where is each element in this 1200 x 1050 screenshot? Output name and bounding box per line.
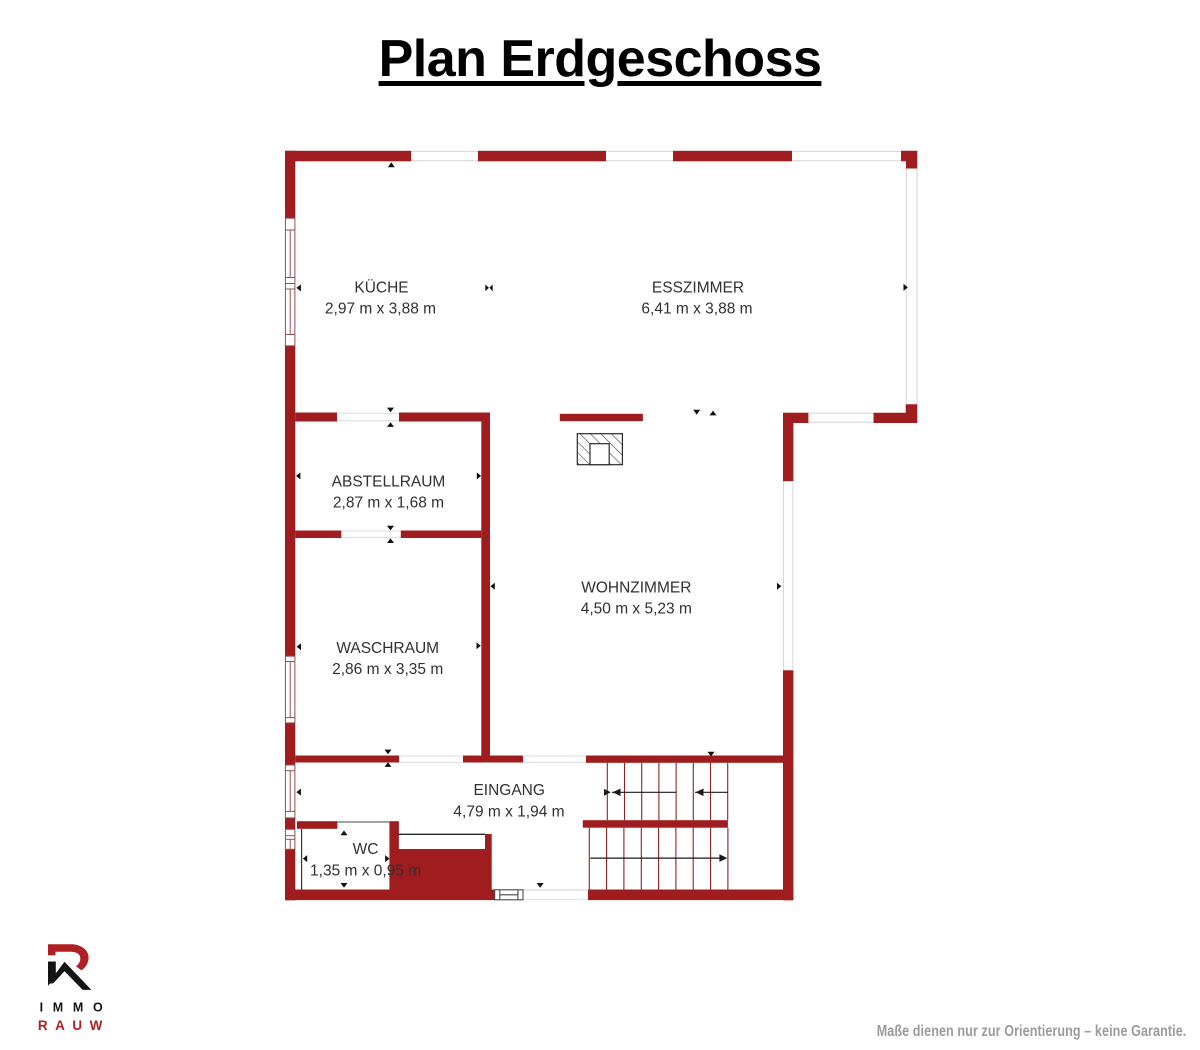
svg-text:4,79 m x 1,94 m: 4,79 m x 1,94 m bbox=[453, 804, 564, 821]
svg-text:KÜCHE: KÜCHE bbox=[354, 279, 408, 297]
svg-text:WC: WC bbox=[353, 841, 379, 858]
svg-text:RAUW: RAUW bbox=[38, 1018, 110, 1033]
svg-text:2,87 m x 1,68 m: 2,87 m x 1,68 m bbox=[333, 495, 444, 512]
svg-text:ABSTELLRAUM: ABSTELLRAUM bbox=[332, 473, 446, 490]
svg-text:6,41 m x 3,88 m: 6,41 m x 3,88 m bbox=[641, 301, 752, 318]
svg-text:ESSZIMMER: ESSZIMMER bbox=[652, 280, 744, 297]
svg-text:1,35 m x 0,95 m: 1,35 m x 0,95 m bbox=[310, 862, 421, 879]
svg-text:IMMO: IMMO bbox=[40, 1001, 113, 1015]
svg-text:2,86 m x 3,35 m: 2,86 m x 3,35 m bbox=[332, 661, 443, 678]
svg-text:2,97 m x 3,88 m: 2,97 m x 3,88 m bbox=[325, 301, 436, 318]
svg-text:WASCHRAUM: WASCHRAUM bbox=[336, 640, 439, 657]
svg-text:EINGANG: EINGANG bbox=[473, 782, 544, 799]
svg-text:4,50 m x 5,23 m: 4,50 m x 5,23 m bbox=[581, 601, 692, 618]
svg-text:WOHNZIMMER: WOHNZIMMER bbox=[581, 580, 691, 597]
